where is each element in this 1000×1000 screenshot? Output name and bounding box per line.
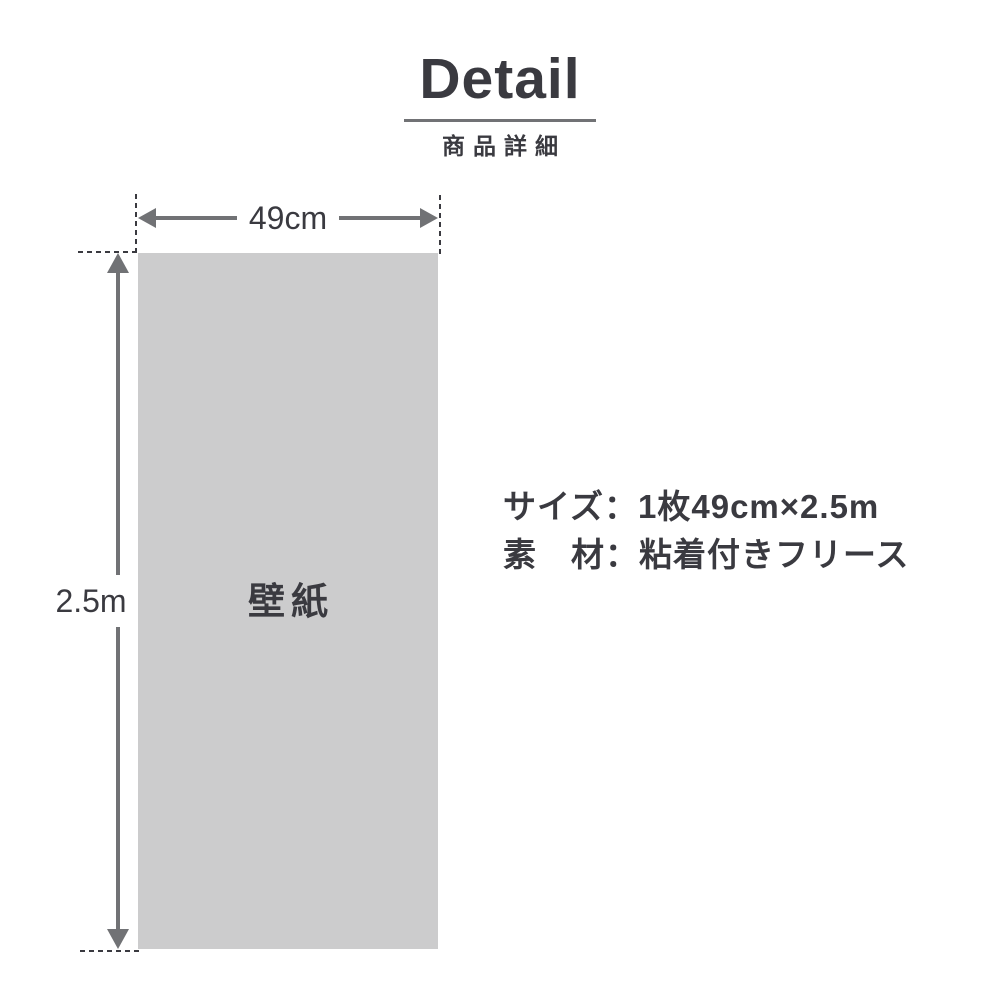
width-dimension: 49cm — [138, 207, 438, 229]
title-divider — [404, 119, 596, 122]
height-dimension: 2.5m — [107, 253, 129, 949]
wallpaper-panel: 壁紙 — [138, 253, 438, 949]
dimension-line — [116, 627, 120, 929]
wallpaper-panel-label: 壁紙 — [242, 583, 334, 620]
dimension-line — [116, 273, 120, 575]
spec-value: 粘着付きフリース — [639, 536, 909, 573]
product-detail-figure: Detail 商品詳細 壁紙 49cm 2.5m サイズ：1枚49cm×2.5m… — [0, 0, 1000, 1000]
arrow-right-icon — [420, 208, 438, 228]
extension-line-bottom-left — [80, 950, 140, 952]
spec-row-size: サイズ：1枚49cm×2.5m — [503, 490, 909, 523]
spec-label: 素 材 — [503, 536, 605, 573]
extension-line-corner-left — [78, 251, 137, 253]
extension-line-top-right — [439, 195, 441, 255]
width-dimension-label: 49cm — [237, 202, 339, 234]
dimension-line — [156, 216, 237, 220]
arrow-down-icon — [107, 929, 129, 949]
extension-line-top-left — [135, 194, 137, 252]
height-dimension-label: 2.5m — [55, 575, 126, 627]
spec-label: サイズ — [503, 488, 604, 525]
spec-row-material: 素 材：粘着付きフリース — [503, 538, 909, 571]
spec-value: 1枚49cm×2.5m — [638, 488, 879, 525]
page-subtitle: 商品詳細 — [0, 133, 1000, 161]
spec-separator: ： — [605, 536, 639, 573]
dimension-line — [339, 216, 420, 220]
page-title: Detail — [0, 51, 1000, 108]
spec-list: サイズ：1枚49cm×2.5m 素 材：粘着付きフリース — [503, 490, 909, 586]
arrow-up-icon — [107, 253, 129, 273]
spec-separator: ： — [604, 488, 638, 525]
arrow-left-icon — [138, 208, 156, 228]
